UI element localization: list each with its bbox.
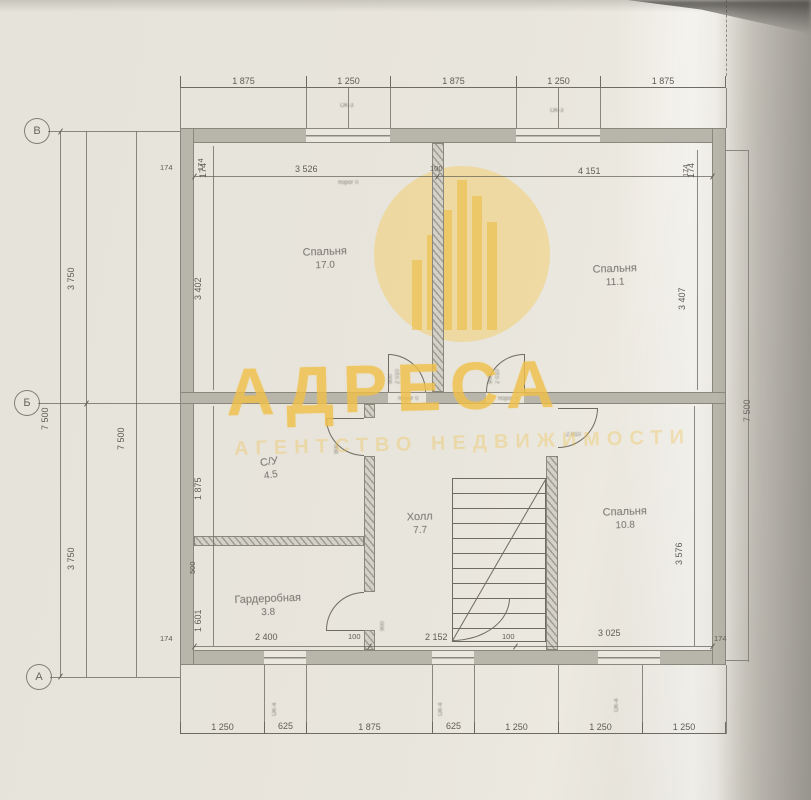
axis-line-v	[48, 131, 180, 132]
extension-line	[726, 88, 727, 128]
extension-line	[726, 665, 727, 734]
axis-line-a	[50, 677, 180, 678]
dim-line-left-total	[60, 131, 61, 677]
dim-value: 2 400	[255, 632, 278, 642]
extension-line	[558, 665, 559, 734]
dim-value: 4 151	[578, 166, 601, 176]
photo-shadow-top-right	[611, 0, 811, 34]
extension-line	[306, 665, 307, 734]
dim-line-room	[213, 406, 214, 646]
watermark-tagline: АГЕНТСТВО НЕДВИЖИМОСТИ	[234, 426, 692, 461]
room-area: 10.8	[580, 517, 670, 534]
extension-line	[726, 660, 748, 661]
dim-chain-bottom-outer: 1 250 625 1 875 625 1 250 1 250 1 250	[180, 722, 726, 734]
dim-value: 7 500	[40, 407, 50, 430]
dim-value: 3 526	[295, 164, 318, 174]
dim-value: 1 250	[673, 722, 696, 732]
room-area: 17.0	[280, 257, 370, 274]
dim-line-room	[694, 406, 695, 646]
dim-line-room	[213, 146, 214, 390]
room-area: 3.8	[218, 604, 318, 621]
dim-value: 1 250	[589, 722, 612, 732]
extension-line	[390, 88, 391, 128]
watermark-logo-bar	[412, 260, 422, 330]
extension-line	[600, 88, 601, 128]
room-label-bedroom1: Спальня 17.0	[280, 243, 371, 274]
axis-label: А	[35, 671, 42, 683]
window-top-left	[306, 128, 390, 143]
window-label: порог 0	[338, 180, 358, 186]
door-arc-wardrobe	[326, 592, 364, 630]
wall-exterior-top	[180, 128, 726, 143]
dim-value: 3 750	[66, 547, 76, 570]
window-bottom-left	[264, 650, 306, 665]
room-label-bedroom3: Спальня 10.8	[580, 503, 671, 534]
axis-circle-a: А	[26, 664, 52, 690]
extension-line	[726, 150, 748, 151]
dim-value: 3 576	[674, 542, 684, 565]
watermark-brand: АДРЕСА	[225, 346, 564, 432]
axis-circle-b: Б	[14, 390, 40, 416]
dim-value: 3 750	[66, 267, 76, 290]
dim-value: 174	[196, 158, 205, 171]
room-area: 7.7	[390, 523, 450, 539]
dim-value: 100	[348, 632, 361, 641]
window-label: ОК-4	[614, 699, 620, 713]
room-area: 11.1	[570, 274, 660, 291]
extension-line	[264, 665, 265, 734]
door-leaf-bedroom3	[558, 408, 598, 409]
dim-value: 1 875	[358, 722, 381, 732]
dim-value: 3 025	[598, 628, 621, 638]
watermark-logo-bar	[472, 196, 482, 330]
dim-value: 7 500	[116, 427, 126, 450]
dim-value: 174	[160, 163, 173, 172]
dim-value: 2 152	[425, 632, 448, 642]
dim-value: 1 601	[193, 609, 203, 632]
room-label-bedroom2: Спальня 11.1	[570, 260, 661, 291]
dim-value: 1 250	[337, 76, 360, 86]
watermark-logo-bar	[487, 222, 497, 330]
room-label-hall: Холл 7.7	[390, 509, 451, 539]
window-bottom-right	[598, 650, 660, 665]
wall-partition-wardrobe	[194, 536, 364, 546]
axis-line-b	[38, 403, 180, 404]
extension-line	[474, 665, 475, 734]
dim-value: 1 875	[442, 76, 465, 86]
extension-line	[180, 665, 181, 734]
dim-value: 3 402	[193, 277, 203, 300]
wall-partition-stairs	[546, 456, 558, 650]
dim-value: 625	[446, 721, 461, 731]
dim-value: 1 875	[232, 76, 255, 86]
dim-value: 1 875	[652, 76, 675, 86]
door-size-label: 900	[380, 621, 386, 631]
dim-line-left-total2	[136, 131, 137, 677]
photo-shadow-top	[0, 0, 811, 12]
dim-value: 1 250	[505, 722, 528, 732]
room-label-wardrobe: Гардеробная 3.8	[218, 590, 319, 621]
dim-value: 500	[188, 561, 197, 574]
dim-value: 174	[160, 634, 173, 643]
dim-line-room	[697, 150, 698, 390]
window-label: ОК-3	[340, 103, 354, 109]
dim-chain-top-outer: 1 875 1 250 1 875 1 250 1 875	[180, 76, 726, 88]
extension-line	[516, 88, 517, 128]
axis-label: В	[33, 125, 40, 137]
window-label: ОК-4	[272, 703, 278, 717]
dim-value: 100	[430, 164, 443, 173]
wall-partition-wc	[364, 456, 375, 592]
axis-label: Б	[23, 397, 30, 409]
photo-shadow-right	[716, 0, 811, 800]
dim-value: 100	[502, 632, 515, 641]
dim-value: 625	[278, 721, 293, 731]
window-label: ОК-3	[550, 108, 564, 114]
door-leaf-wardrobe	[326, 630, 364, 631]
watermark-logo-bar	[457, 180, 467, 330]
dim-value: 3 407	[677, 287, 687, 310]
extension-line	[642, 665, 643, 734]
dim-value: 1 875	[193, 477, 203, 500]
dim-line-bottom-inner	[194, 646, 712, 647]
window-bottom-middle	[432, 650, 474, 665]
dim-line-top-inner	[194, 176, 712, 177]
extension-line-dashed	[726, 0, 727, 76]
extension-line	[180, 88, 181, 128]
dim-value: 7 500	[742, 399, 752, 422]
extension-line	[432, 665, 433, 734]
window-label: ОК-4	[438, 703, 444, 717]
dim-value: 174	[681, 164, 690, 177]
window-top-right	[516, 128, 600, 143]
extension-line	[306, 88, 307, 128]
dim-value: 174	[714, 634, 727, 643]
dim-value: 1 250	[547, 76, 570, 86]
dim-value: 1 250	[211, 722, 234, 732]
axis-circle-v: В	[24, 118, 50, 144]
